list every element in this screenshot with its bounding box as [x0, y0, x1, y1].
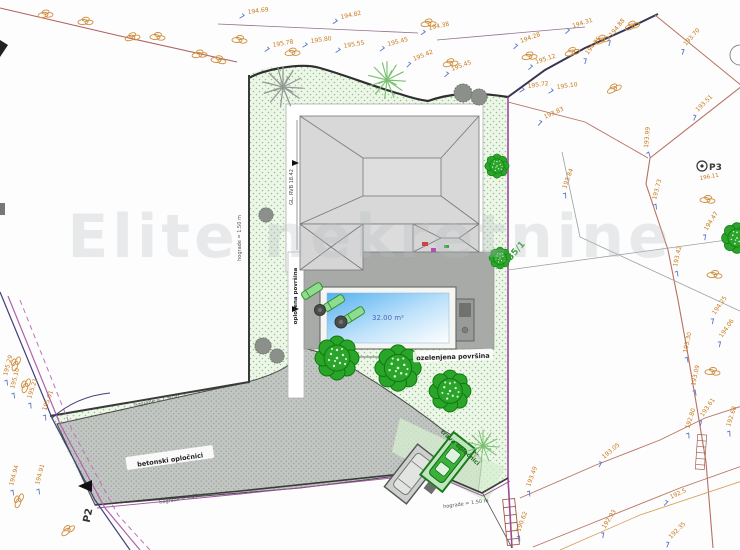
spot-height: 190.62 — [512, 510, 530, 541]
flower-tree-icon — [722, 223, 740, 254]
clipped-tree-outline — [730, 45, 740, 65]
svg-text:192.35: 192.35 — [667, 520, 687, 540]
svg-text:194.94: 194.94 — [8, 464, 20, 486]
svg-text:195.10: 195.10 — [556, 81, 578, 91]
rocks-icon — [78, 17, 94, 26]
svg-text:192.5: 192.5 — [669, 487, 688, 501]
pool-equipment — [456, 299, 474, 341]
svg-text:194.85: 194.85 — [584, 35, 603, 56]
spot-height: 194.47 — [698, 210, 721, 240]
spot-height: 194.38 — [419, 21, 450, 35]
rocks-icon — [124, 31, 140, 42]
svg-text:194.82: 194.82 — [340, 10, 362, 21]
spot-height: 193.99 — [642, 126, 653, 157]
bush-tree-icon — [270, 349, 284, 363]
flower-tree-icon — [315, 336, 359, 380]
svg-text:193.09: 193.09 — [690, 364, 701, 386]
svg-text:193.84: 193.84 — [561, 167, 575, 189]
svg-text:195.10: 195.10 — [9, 367, 21, 389]
corner-mark — [0, 40, 8, 57]
spot-height: 193.49 — [522, 465, 540, 496]
fence-height-label-4: hograde = 1.50 m — [443, 498, 489, 510]
rocks-icon — [191, 49, 207, 59]
spot-height: 192.93 — [596, 508, 619, 538]
svg-text:192.80: 192.80 — [684, 407, 697, 429]
svg-text:193.05: 193.05 — [601, 442, 622, 461]
bush-tree-icon — [471, 89, 487, 105]
rocks-icon — [605, 81, 622, 95]
spot-height: 194.28 — [511, 31, 542, 49]
svg-text:192.68: 192.68 — [725, 405, 738, 427]
spot-height: 193.84 — [558, 167, 576, 198]
svg-text:193.73: 193.73 — [651, 178, 663, 200]
spot-height: 195.42 — [404, 48, 435, 67]
spot-height: 194.06 — [713, 318, 737, 347]
bush-tree-icon — [255, 338, 271, 354]
benchmark-p3: P3 196.11 — [697, 161, 722, 182]
svg-text:194.31: 194.31 — [571, 17, 593, 30]
house-dim-label: GL. RVB 18.42 — [289, 169, 295, 205]
svg-text:193.49: 193.49 — [525, 465, 539, 487]
rocks-icon — [59, 522, 75, 538]
boundary-left — [50, 75, 249, 416]
pool-area-label: 32.00 m² — [372, 314, 404, 322]
spot-height: 193.30 — [680, 331, 694, 362]
spot-height: 195.45 — [378, 36, 409, 51]
spot-height: 194.91 — [32, 463, 48, 494]
rocks-icon — [707, 271, 722, 279]
svg-text:195.21: 195.21 — [26, 377, 39, 399]
svg-text:193.83: 193.83 — [543, 106, 565, 121]
svg-text:194.28: 194.28 — [519, 31, 541, 45]
site-plan-drawing: 32.00 m² 8.00 — [0, 0, 740, 550]
svg-text:194.88: 194.88 — [608, 17, 627, 38]
rocks-icon — [150, 33, 165, 41]
svg-text:194.47: 194.47 — [703, 210, 720, 232]
svg-text:195.12: 195.12 — [534, 53, 556, 66]
svg-text:193.42: 193.42 — [672, 245, 683, 267]
rocks-icon — [284, 47, 300, 57]
site-plan-page: 32.00 m² 8.00 — [0, 0, 740, 550]
svg-text:194.69: 194.69 — [247, 6, 269, 16]
spot-height: 192.68 — [722, 405, 739, 436]
svg-text:194.91: 194.91 — [34, 463, 46, 485]
bush-tree-icon — [259, 208, 273, 222]
spot-height: 195.10 — [547, 81, 578, 93]
svg-text:194.25: 194.25 — [711, 295, 729, 316]
spot-height: 194.25 — [706, 295, 730, 324]
rocks-icon — [232, 36, 247, 44]
svg-text:194.06: 194.06 — [718, 318, 736, 339]
spot-height: 194.69 — [238, 6, 269, 18]
svg-text:195.55: 195.55 — [343, 39, 365, 50]
benchmark-label: P3 — [709, 163, 722, 173]
benchmark-elevation: 196.11 — [699, 173, 719, 182]
svg-text:195.78: 195.78 — [272, 38, 294, 49]
svg-text:192.93: 192.93 — [601, 508, 618, 530]
spot-height: 194.94 — [6, 464, 22, 495]
spot-height: 194.31 — [563, 17, 594, 34]
spot-height: 195.55 — [334, 39, 365, 52]
rocks-icon — [705, 368, 720, 376]
svg-text:195.45: 195.45 — [387, 36, 409, 48]
edge-mark — [0, 203, 5, 215]
svg-text:195.42: 195.42 — [412, 48, 434, 62]
spot-height: 193.51 — [688, 93, 715, 120]
paved-surface-text: opločena površina — [292, 267, 299, 324]
rocks-icon — [700, 196, 715, 204]
fence-height-label-1: hograde = 1.50 m — [237, 215, 243, 261]
rocks-icon — [12, 492, 24, 509]
spot-height: 193.05 — [594, 442, 622, 468]
spot-height: 194.82 — [331, 10, 362, 24]
rocks-icon — [37, 9, 53, 19]
spot-height: 193.73 — [649, 178, 665, 209]
house-roof — [300, 116, 479, 270]
spot-height: 192.35 — [661, 520, 688, 547]
flower-tree-icon — [485, 154, 509, 178]
flower-tree-icon — [429, 370, 471, 412]
bush-tree-icon — [454, 84, 472, 102]
svg-text:195.80: 195.80 — [310, 35, 332, 45]
svg-text:193.99: 193.99 — [643, 126, 652, 148]
rocks-icon — [624, 19, 641, 32]
road-p2-label: P2 — [82, 507, 96, 523]
svg-text:193.70: 193.70 — [682, 27, 701, 47]
retaining-wall-ladder-2 — [695, 434, 706, 469]
spot-height: 195.80 — [301, 35, 332, 47]
